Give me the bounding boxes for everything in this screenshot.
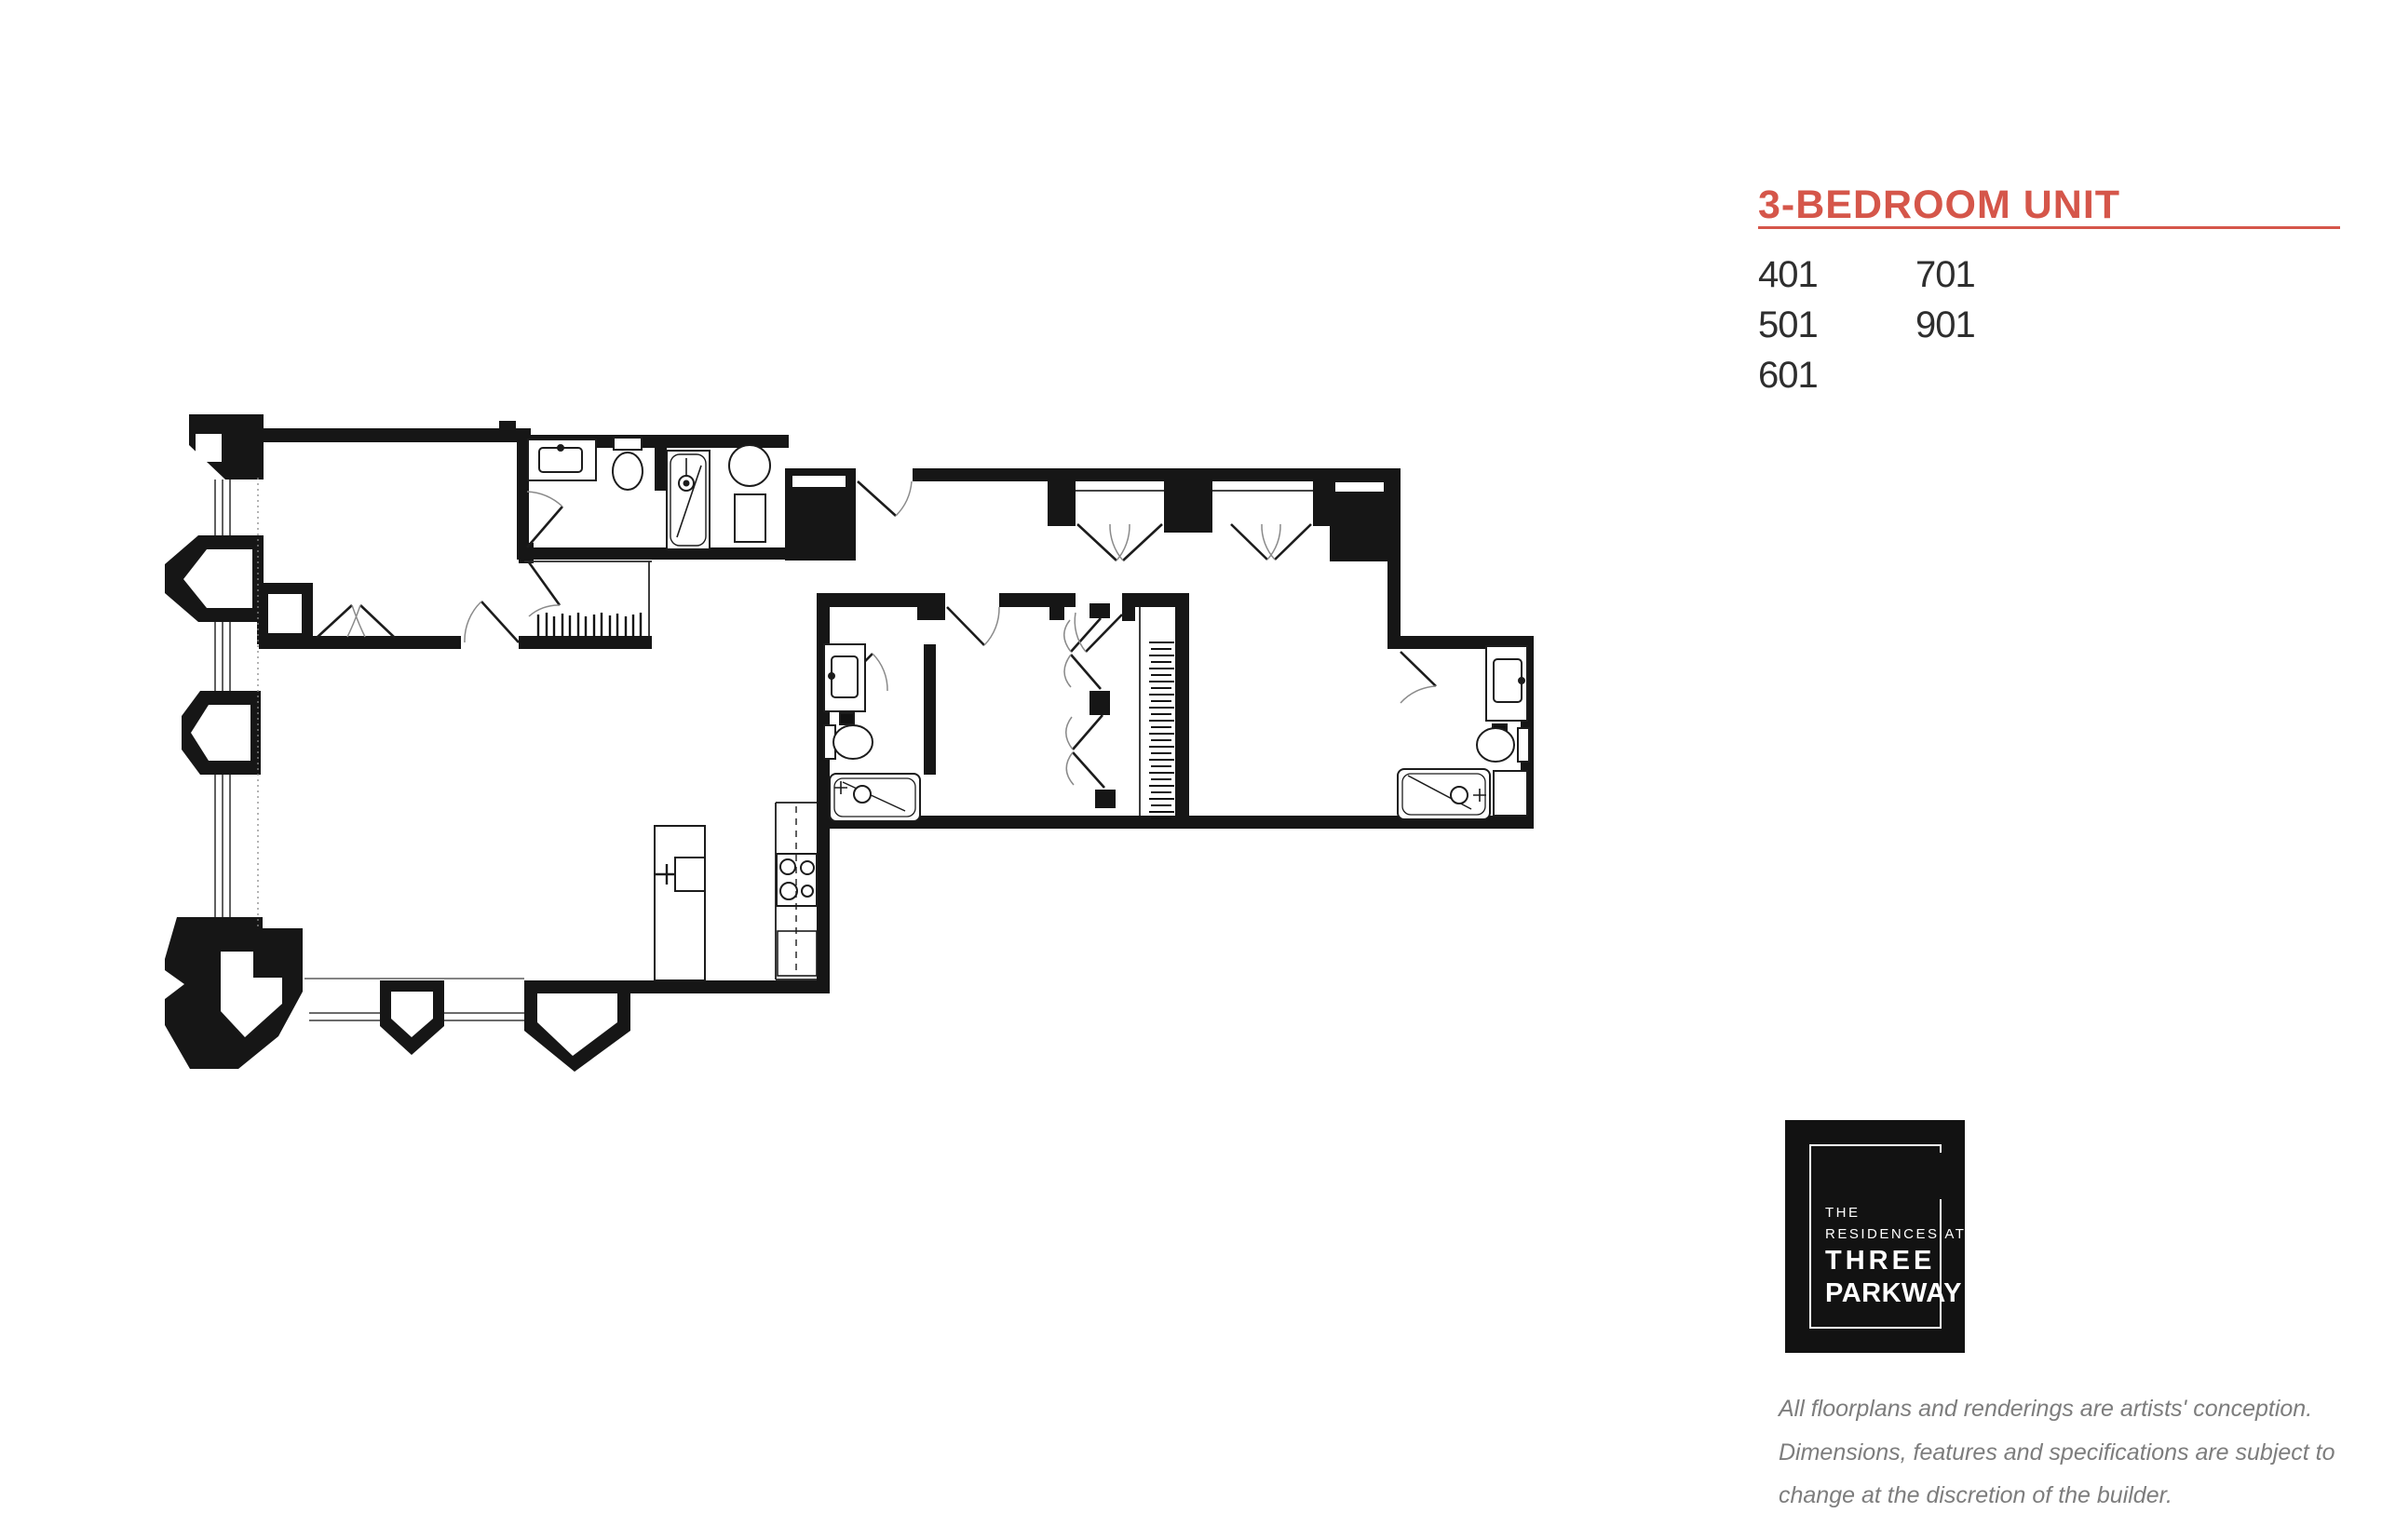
closet-lines <box>524 491 1313 816</box>
toilet-bowl <box>613 453 643 490</box>
disclaimer-line: Dimensions, features and specifications … <box>1779 1431 2382 1475</box>
floorplan-sheet: { "header": { "title": "3-BEDROOM UNIT",… <box>0 0 2382 1540</box>
unit-number: 501 <box>1758 300 1818 350</box>
disclaimer: All floorplans and renderings are artist… <box>1779 1387 2382 1518</box>
logo-line-the: THE <box>1825 1202 1966 1223</box>
floor-plan <box>0 0 2382 1540</box>
island-sink <box>675 858 705 891</box>
service-shafts <box>785 468 1389 561</box>
brand-logo: THE RESIDENCES AT THREE PARKWAY <box>1785 1120 1965 1353</box>
unit-number: 601 <box>1758 350 1818 400</box>
unit-numbers-col1: 401 501 601 <box>1758 250 1818 400</box>
unit-number: 401 <box>1758 250 1818 300</box>
toilet-tank <box>614 438 642 450</box>
logo-frame-tick <box>1940 1144 1942 1153</box>
corner-notch <box>196 434 222 462</box>
page-title: 3-BEDROOM UNIT <box>1758 182 2120 228</box>
bath2-fixtures <box>824 644 920 821</box>
shower <box>667 451 710 549</box>
tub-faucet <box>854 786 871 803</box>
logo-text: THE RESIDENCES AT THREE PARKWAY <box>1825 1202 1966 1310</box>
tub-faucet <box>1451 787 1468 804</box>
logo-frame-left <box>1809 1144 1811 1329</box>
logo-frame-bottom <box>1809 1327 1942 1329</box>
kitchen-island <box>655 826 705 980</box>
kitchen <box>655 803 817 980</box>
unit-number: 701 <box>1915 250 1975 300</box>
logo-frame-top <box>1809 1144 1942 1146</box>
disclaimer-line: All floorplans and renderings are artist… <box>1779 1387 2382 1431</box>
round-table <box>729 445 770 486</box>
bath1-fixtures <box>528 438 770 549</box>
unit-number: 901 <box>1915 300 1975 350</box>
logo-line-parkway: PARKWAY <box>1825 1277 1966 1310</box>
closet-hatch-bed2 <box>1149 642 1174 818</box>
toilet-bowl <box>1477 728 1514 762</box>
disclaimer-line: change at the discretion of the builder. <box>1779 1474 2382 1518</box>
toilet-bowl <box>833 725 873 759</box>
closet-hatch-bed1 <box>538 613 641 637</box>
door-leaves <box>317 481 1436 788</box>
unit-numbers-col2: 701 901 <box>1915 250 1975 350</box>
bay-windows <box>165 535 630 1072</box>
toilet-tank <box>1518 728 1529 762</box>
title-underline <box>1758 226 2340 229</box>
logo-line-residences: RESIDENCES AT <box>1825 1223 1966 1245</box>
logo-line-three: THREE <box>1825 1245 1966 1277</box>
cabinet <box>1494 771 1527 816</box>
bath3-fixtures <box>1398 646 1529 819</box>
